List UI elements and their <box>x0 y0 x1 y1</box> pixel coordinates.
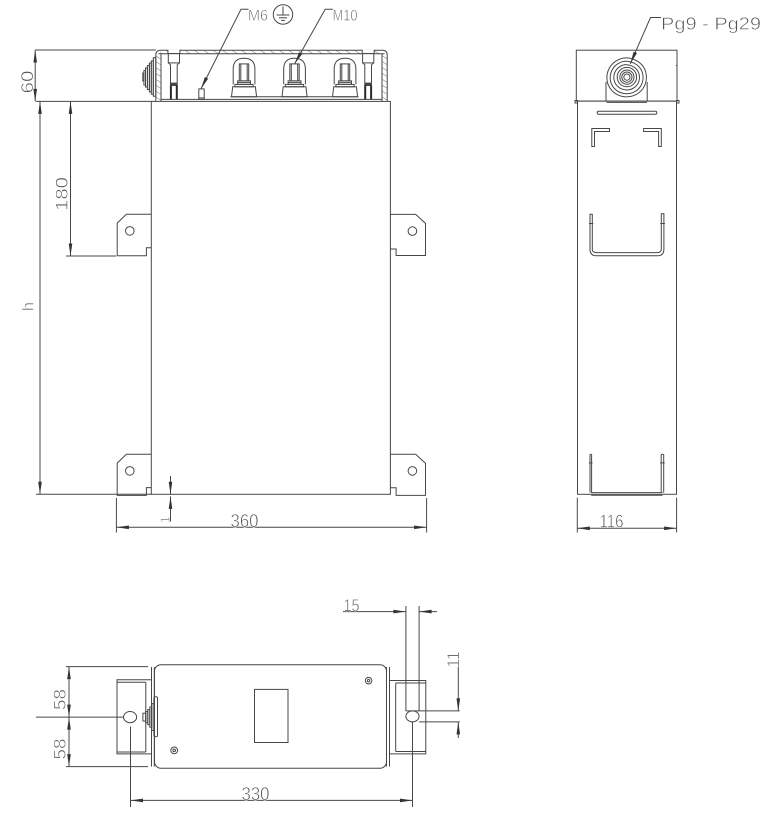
svg-text:1: 1 <box>158 516 173 523</box>
svg-text:330: 330 <box>242 783 270 804</box>
svg-text:M6: M6 <box>248 8 268 25</box>
svg-text:180: 180 <box>53 177 72 211</box>
svg-text:11: 11 <box>444 652 463 668</box>
svg-text:116: 116 <box>600 511 624 532</box>
svg-text:58: 58 <box>51 689 70 710</box>
svg-text:360: 360 <box>231 510 259 531</box>
svg-text:15: 15 <box>344 596 360 615</box>
svg-text:Pg9 - Pg29: Pg9 - Pg29 <box>661 14 761 34</box>
svg-text:60: 60 <box>18 71 37 94</box>
svg-text:58: 58 <box>51 739 70 760</box>
svg-text:M10: M10 <box>333 8 358 25</box>
svg-text:h: h <box>21 302 38 311</box>
